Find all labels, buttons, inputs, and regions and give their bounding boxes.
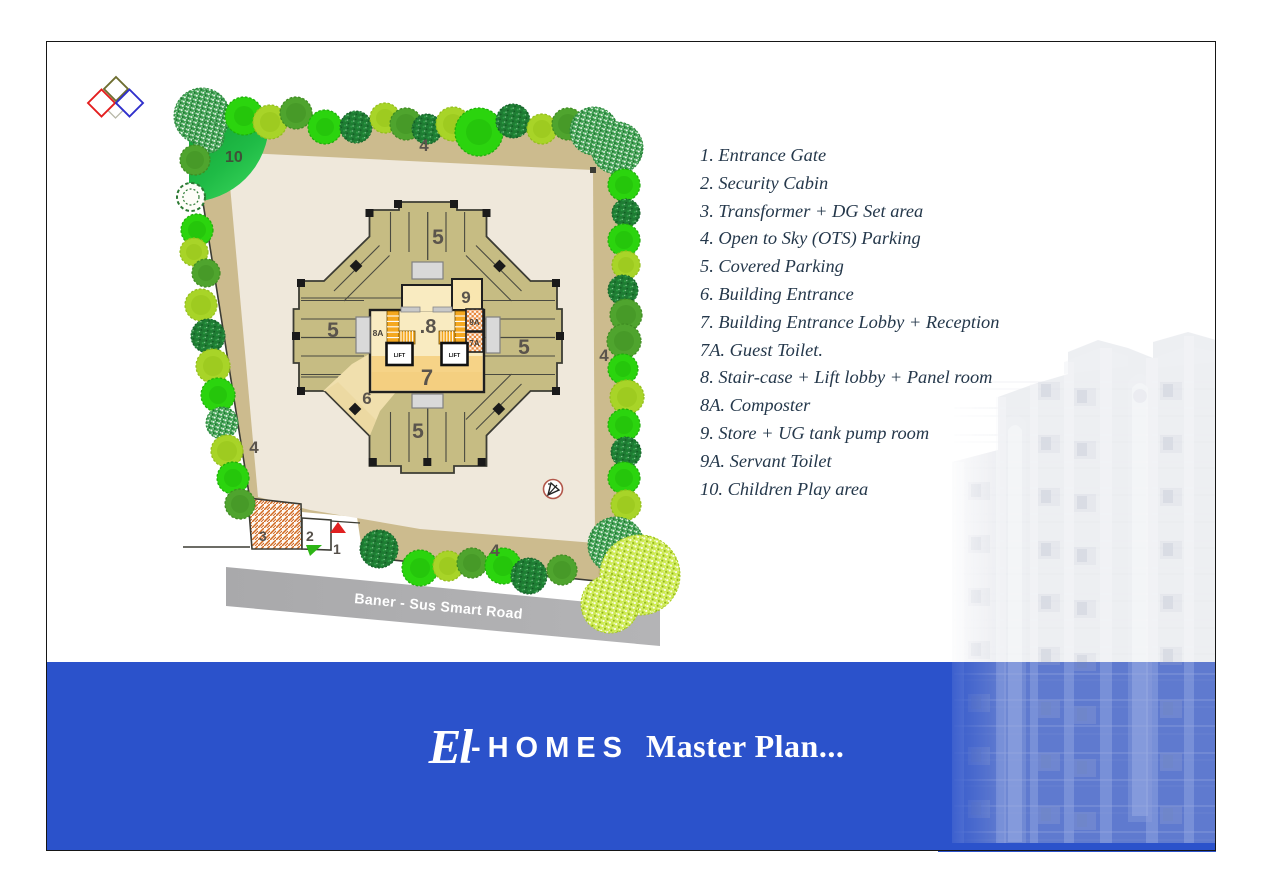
svg-text:5: 5	[518, 336, 530, 359]
svg-text:6: 6	[362, 389, 371, 408]
svg-text:7A: 7A	[469, 339, 479, 348]
svg-text:LIFT: LIFT	[449, 353, 461, 359]
svg-text:8A: 8A	[373, 328, 384, 338]
svg-text:.8: .8	[420, 316, 437, 338]
svg-text:5: 5	[412, 420, 424, 443]
svg-text:5: 5	[432, 226, 444, 249]
svg-text:4: 4	[599, 346, 609, 365]
svg-text:9A: 9A	[469, 318, 479, 327]
svg-text:4: 4	[249, 438, 259, 457]
svg-text:2: 2	[306, 528, 314, 544]
svg-text:7: 7	[421, 365, 433, 390]
svg-text:4: 4	[490, 541, 500, 560]
svg-text:9: 9	[461, 288, 470, 307]
svg-text:5: 5	[327, 319, 339, 342]
svg-text:LIFT: LIFT	[394, 353, 406, 359]
svg-text:10: 10	[225, 149, 243, 166]
svg-text:3: 3	[259, 528, 267, 544]
svg-text:4: 4	[419, 136, 429, 155]
svg-text:1: 1	[333, 541, 341, 557]
